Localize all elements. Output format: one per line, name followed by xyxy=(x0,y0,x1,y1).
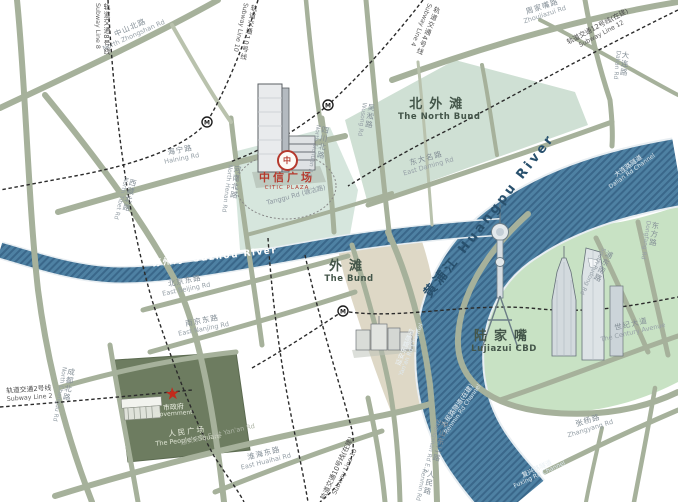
road-zhangyang xyxy=(545,410,678,472)
svg-text:M: M xyxy=(340,309,346,316)
road-minor-1 xyxy=(306,0,321,125)
road-zhongshan-north xyxy=(0,0,218,108)
metro-line-10-south xyxy=(305,255,353,502)
government-building xyxy=(121,396,162,420)
metro-line-10-north xyxy=(0,0,258,190)
svg-text:M: M xyxy=(325,103,331,110)
road-pudong-vert-2 xyxy=(586,428,602,502)
metro-station-north: M xyxy=(323,100,333,110)
swfc-tower xyxy=(582,248,604,360)
road-henan-ext xyxy=(172,25,231,122)
road-zhoujiazui xyxy=(392,2,678,80)
road-topright-diag xyxy=(540,20,678,95)
svg-text:M: M xyxy=(204,120,210,127)
metro-station-nanjing-east: M xyxy=(338,306,348,316)
shanghai-location-map: M M M xyxy=(0,0,678,502)
map-canvas: M M M xyxy=(0,0,678,502)
metro-station-haining: M xyxy=(202,117,212,127)
pudong-tower-3 xyxy=(610,286,623,356)
